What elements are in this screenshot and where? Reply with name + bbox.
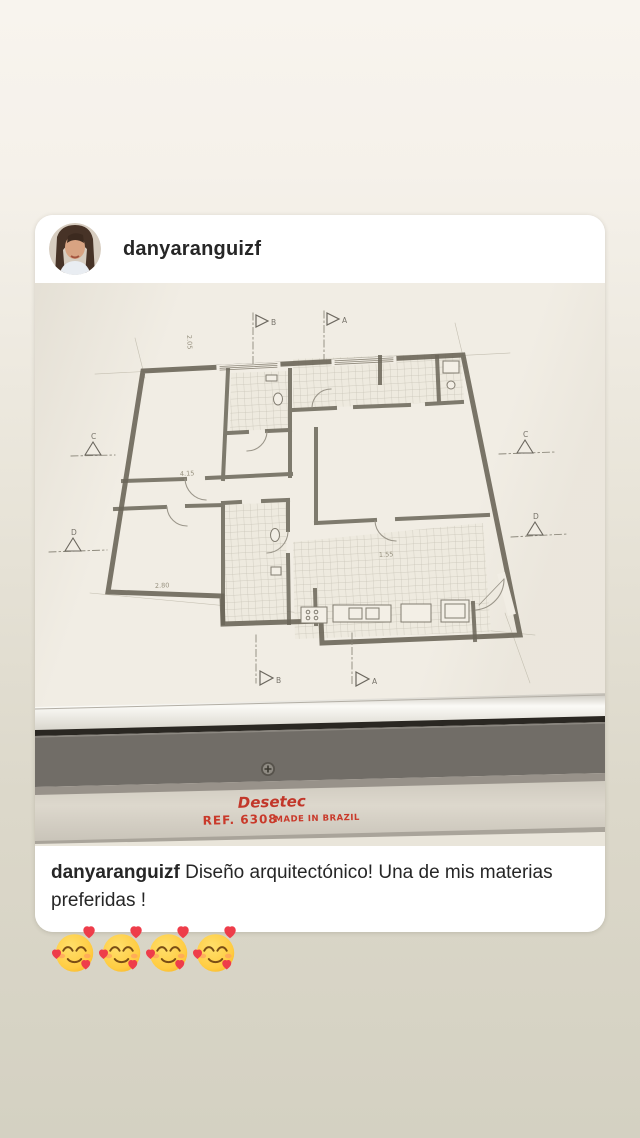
floor-plan-photo: B A B A: [35, 283, 605, 846]
svg-text:1.55: 1.55: [379, 550, 394, 559]
ruler-made-in: MADE IN BRAZIL: [274, 813, 360, 825]
caption-username[interactable]: danyaranguizf: [51, 862, 180, 883]
ruler-ref: REF. 6308: [203, 812, 278, 828]
post-header: danyaranguizf: [35, 215, 605, 283]
svg-text:B: B: [271, 318, 276, 327]
svg-text:4.15: 4.15: [180, 469, 195, 478]
avatar-image: [49, 223, 101, 275]
heart-face-emoji: [146, 926, 194, 974]
heart-face-emoji: [193, 926, 241, 974]
heart-face-emoji: [52, 926, 100, 974]
svg-text:A: A: [342, 316, 348, 325]
svg-text:C: C: [523, 430, 528, 439]
svg-text:2.80: 2.80: [155, 581, 170, 590]
post-photo[interactable]: B A B A: [35, 283, 605, 846]
svg-text:D: D: [71, 528, 77, 537]
post-caption: danyaranguizf Diseño arquitectónico! Una…: [35, 846, 605, 932]
ruler-screw: [261, 762, 275, 776]
heart-face-emoji: [99, 926, 147, 974]
svg-text:C: C: [91, 432, 96, 441]
ruler-brand: Desetec: [238, 792, 306, 812]
bathroom-bottom-tiles: [225, 502, 287, 622]
post-username[interactable]: danyaranguizf: [123, 238, 261, 261]
avatar[interactable]: [49, 223, 101, 275]
instagram-post-card[interactable]: danyaranguizf: [35, 215, 605, 932]
svg-text:B: B: [276, 676, 281, 685]
drafting-ruler: Desetec REF. 6308 MADE IN BRAZIL: [35, 693, 605, 846]
svg-text:2.05: 2.05: [185, 335, 194, 350]
svg-text:A: A: [372, 677, 378, 686]
svg-text:D: D: [533, 512, 539, 521]
emoji-sticker-row: [52, 926, 240, 974]
